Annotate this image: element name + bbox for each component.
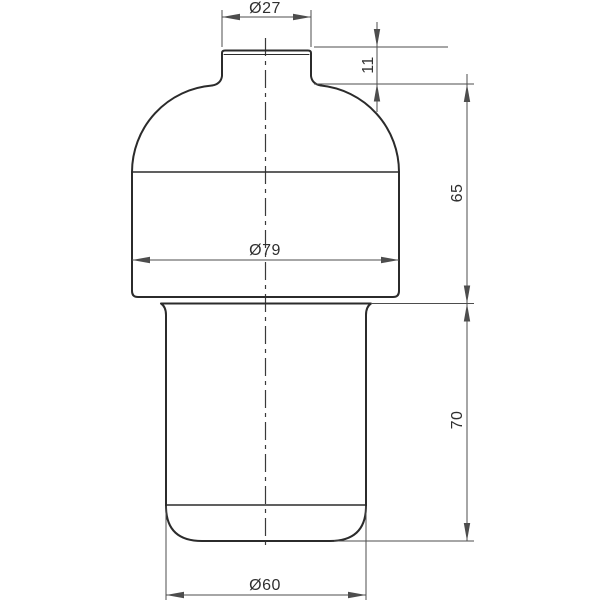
- arrow-right-icon: [293, 14, 311, 20]
- arrow-down-icon: [464, 523, 470, 541]
- arrow-left-icon: [132, 257, 150, 263]
- arrow-up-icon: [464, 304, 470, 322]
- arrow-right-icon: [381, 257, 399, 263]
- dim-label-bottom-diameter: Ø60: [249, 577, 281, 594]
- arrowheads-group: [132, 14, 470, 598]
- arrow-up-icon: [464, 84, 470, 102]
- dim-label-lower-body-height: 70: [449, 411, 466, 430]
- dim-label-neck-diameter: Ø27: [249, 0, 281, 17]
- arrow-down-icon: [464, 286, 470, 304]
- dim-label-body-diameter: Ø79: [249, 242, 281, 259]
- neck-outline: [212, 51, 321, 86]
- dim-label-neck-height: 11: [360, 56, 377, 74]
- arrow-right-icon: [348, 592, 366, 598]
- dimension-lines-group: [132, 10, 474, 600]
- dim-label-upper-body-height: 65: [449, 184, 466, 203]
- arrow-down-icon: [374, 29, 380, 47]
- arrow-left-icon: [222, 14, 240, 20]
- dome-right-arc: [321, 86, 399, 173]
- arrow-up-icon: [374, 84, 380, 102]
- arrow-left-icon: [166, 592, 184, 598]
- technical-drawing: Ø27 11 65 Ø79 70 Ø60: [0, 0, 600, 600]
- technical-drawing-page: Ø27 11 65 Ø79 70 Ø60: [0, 0, 600, 600]
- dome-left-arc: [132, 86, 212, 173]
